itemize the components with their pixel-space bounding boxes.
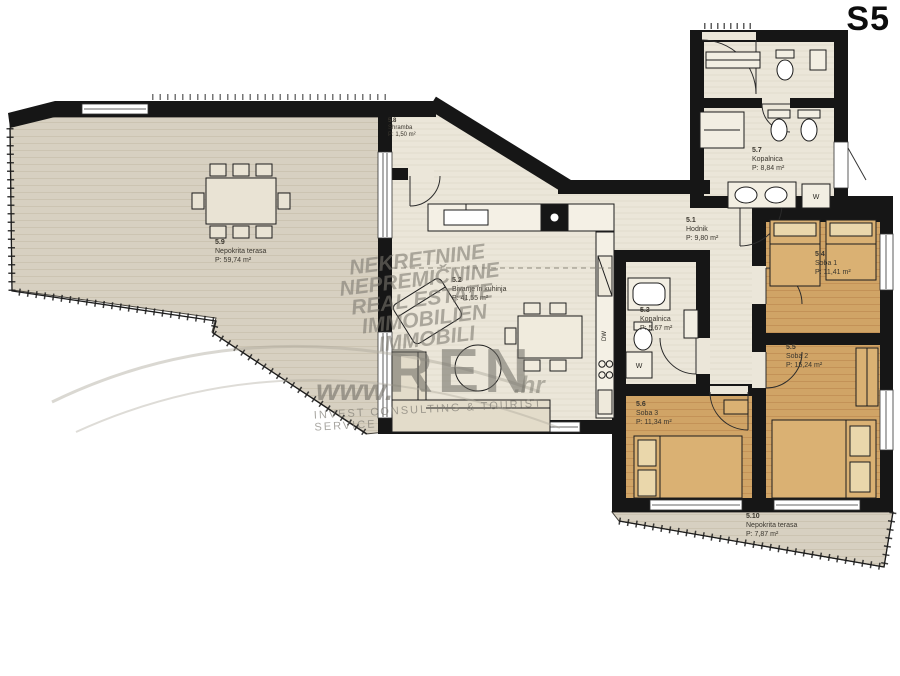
window-soba2-right bbox=[880, 390, 893, 450]
room-name: Kopalnica bbox=[640, 315, 672, 324]
room-label-soba2: 5.5 Soba 2 P: 15,24 m² bbox=[786, 343, 822, 370]
wall-hall-top bbox=[558, 180, 710, 194]
wall-bridge-right bbox=[834, 196, 893, 210]
gap-bath1-partition bbox=[762, 98, 790, 108]
room-label-kopalnica-1: 5.7 Kopalnica P: 8,84 m² bbox=[752, 146, 784, 173]
gap-entry-door bbox=[702, 32, 756, 40]
room-name: Nepokrita terasa bbox=[215, 247, 266, 256]
window-terrace-top-door bbox=[82, 104, 148, 114]
room-number: 5.2 bbox=[452, 276, 506, 285]
room-area: P: 1,50 m² bbox=[388, 132, 416, 139]
room-name: Hodnik bbox=[686, 225, 718, 234]
wall-bath2-top bbox=[612, 250, 710, 262]
gap-soba1-door bbox=[752, 266, 766, 304]
gap-soba3-door bbox=[710, 386, 748, 394]
room-name: Shramba bbox=[388, 125, 416, 132]
kitchen-counter bbox=[428, 204, 614, 231]
floorplan-drawing: DW bbox=[0, 0, 900, 676]
wall-soba1-soba2 bbox=[752, 333, 893, 345]
room-name: Soba 2 bbox=[786, 352, 822, 361]
room-number: 5.8 bbox=[388, 118, 416, 125]
room-number: 5.7 bbox=[752, 146, 784, 155]
room-label-terasa-small: 5.10 Nepokrita terasa P: 7,87 m² bbox=[746, 512, 797, 539]
window-soba2-bottom bbox=[774, 500, 860, 510]
room-name: Bivanje in kuhinja bbox=[452, 285, 506, 294]
window-divider-lower bbox=[378, 332, 392, 418]
room-name: Soba 3 bbox=[636, 409, 672, 418]
room-name: Soba 1 bbox=[815, 259, 851, 268]
room-number: 5.10 bbox=[746, 512, 797, 521]
room-name: Nepokrita terasa bbox=[746, 521, 797, 530]
gap-bath2-door bbox=[696, 338, 710, 374]
washer-label-bath2: W bbox=[636, 363, 643, 370]
dishwasher-label: DW bbox=[602, 331, 608, 341]
room-label-soba1: 5.4 Soba 1 P: 11,41 m² bbox=[815, 250, 851, 277]
room-number: 5.5 bbox=[786, 343, 822, 352]
room-area: P: 5,67 m² bbox=[640, 324, 672, 333]
room-label-kopalnica-2: 5.3 Kopalnica P: 5,67 m² bbox=[640, 306, 672, 333]
window-soba1-right bbox=[880, 234, 893, 290]
room-area: P: 9,80 m² bbox=[686, 234, 718, 243]
room-area: P: 7,87 m² bbox=[746, 530, 797, 539]
room-label-hodnik: 5.1 Hodnik P: 9,80 m² bbox=[686, 216, 718, 243]
room-label-shramba: 5.8 Shramba P: 1,50 m² bbox=[388, 118, 416, 140]
room-number: 5.1 bbox=[686, 216, 718, 225]
kitchen-appliance-strip: DW bbox=[596, 232, 614, 418]
gap-soba2-door bbox=[752, 352, 766, 388]
window-soba3-bottom bbox=[650, 500, 742, 510]
room-label-soba3: 5.6 Soba 3 P: 11,34 m² bbox=[636, 400, 672, 427]
washer-label-bath1: W bbox=[813, 194, 820, 201]
room-number: 5.6 bbox=[636, 400, 672, 409]
room-area: P: 8,84 m² bbox=[752, 164, 784, 173]
room-label-terasa-main: 5.9 Nepokrita terasa P: 59,74 m² bbox=[215, 238, 266, 265]
room-area: P: 59,74 m² bbox=[215, 256, 266, 265]
room-area: P: 11,41 m² bbox=[815, 268, 851, 277]
gap-shramba-door bbox=[408, 170, 434, 180]
room-area: P: 15,24 m² bbox=[786, 361, 822, 370]
unit-title: S5 bbox=[846, 0, 890, 39]
room-label-living: 5.2 Bivanje in kuhinja P: 41,55 m² bbox=[452, 276, 506, 303]
window-bath1-right bbox=[834, 142, 866, 188]
terrace-main-floor bbox=[10, 117, 386, 434]
room-number: 5.3 bbox=[640, 306, 672, 315]
room-number: 5.9 bbox=[215, 238, 266, 247]
room-number: 5.4 bbox=[815, 250, 851, 259]
room-area: P: 11,34 m² bbox=[636, 418, 672, 427]
floorplan-page: DW bbox=[0, 0, 900, 676]
window-divider-upper bbox=[378, 152, 392, 238]
room-area: P: 41,55 m² bbox=[452, 294, 506, 303]
room-name: Kopalnica bbox=[752, 155, 784, 164]
